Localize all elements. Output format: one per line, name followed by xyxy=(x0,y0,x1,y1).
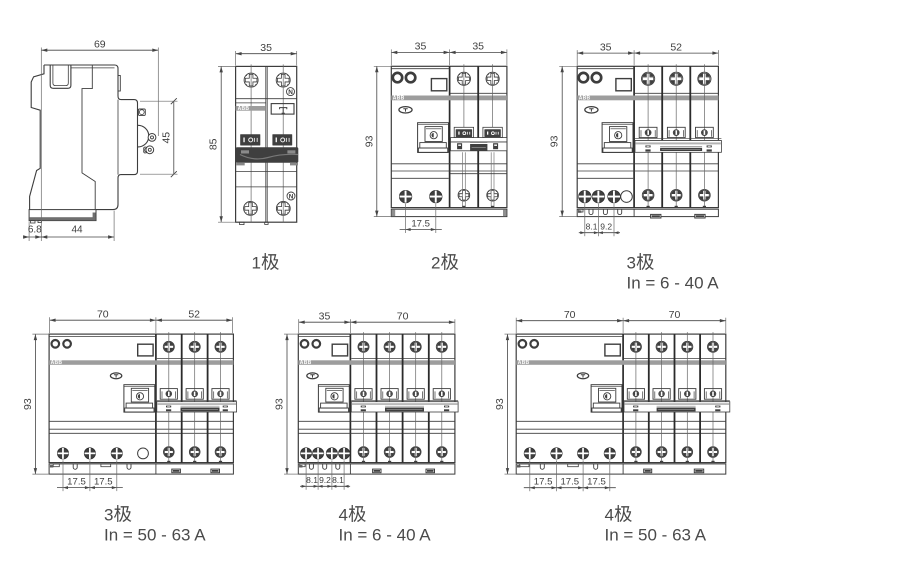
svg-text:N: N xyxy=(288,89,293,96)
svg-text:69: 69 xyxy=(94,38,106,50)
svg-text:2: 2 xyxy=(431,254,440,273)
svg-text:ABB: ABB xyxy=(518,360,530,366)
svg-text:8.1: 8.1 xyxy=(586,222,598,232)
svg-text:In = 6 - 40 A: In = 6 - 40 A xyxy=(339,526,432,545)
svg-text:35: 35 xyxy=(415,41,427,53)
svg-text:ABB: ABB xyxy=(238,106,250,112)
svg-text:70: 70 xyxy=(669,309,681,321)
svg-text:In = 50 - 63 A: In = 50 - 63 A xyxy=(605,526,707,545)
svg-text:70: 70 xyxy=(564,309,576,321)
svg-text:52: 52 xyxy=(188,308,200,320)
svg-text:1: 1 xyxy=(252,254,261,273)
svg-text:52: 52 xyxy=(670,41,682,53)
svg-text:4: 4 xyxy=(605,506,614,525)
svg-text:17.5: 17.5 xyxy=(587,477,606,488)
svg-text:35: 35 xyxy=(472,41,484,53)
svg-text:93: 93 xyxy=(549,135,561,147)
svg-text:3: 3 xyxy=(104,506,113,525)
svg-text:ABB: ABB xyxy=(51,360,63,366)
svg-text:17.5: 17.5 xyxy=(560,477,579,488)
svg-text:ABB: ABB xyxy=(579,96,591,102)
svg-text:35: 35 xyxy=(260,42,272,54)
svg-text:8.1: 8.1 xyxy=(306,475,318,485)
svg-text:17.5: 17.5 xyxy=(534,477,553,488)
svg-text:85: 85 xyxy=(208,138,220,150)
svg-text:93: 93 xyxy=(494,398,506,410)
svg-text:93: 93 xyxy=(363,135,375,147)
svg-text:70: 70 xyxy=(397,310,409,322)
svg-text:3: 3 xyxy=(627,254,636,273)
svg-text:44: 44 xyxy=(71,225,83,236)
svg-text:17.5: 17.5 xyxy=(94,476,113,487)
svg-text:17.5: 17.5 xyxy=(411,218,430,229)
svg-text:9.2: 9.2 xyxy=(319,475,331,485)
svg-text:70: 70 xyxy=(97,308,109,320)
svg-text:93: 93 xyxy=(22,398,34,410)
svg-text:9.2: 9.2 xyxy=(600,222,612,232)
svg-text:4: 4 xyxy=(339,506,348,525)
svg-text:N: N xyxy=(289,193,294,200)
svg-text:35: 35 xyxy=(600,41,612,53)
svg-text:ABB: ABB xyxy=(393,96,405,102)
svg-text:8.1: 8.1 xyxy=(332,475,344,485)
svg-text:45: 45 xyxy=(160,132,172,144)
svg-text:93: 93 xyxy=(274,398,286,410)
svg-text:In = 6 - 40 A: In = 6 - 40 A xyxy=(627,274,720,293)
svg-text:35: 35 xyxy=(319,310,331,322)
svg-text:ABB: ABB xyxy=(300,360,312,366)
svg-text:In = 50 - 63 A: In = 50 - 63 A xyxy=(104,526,206,545)
svg-text:6.8: 6.8 xyxy=(28,225,42,236)
svg-text:17.5: 17.5 xyxy=(67,476,86,487)
